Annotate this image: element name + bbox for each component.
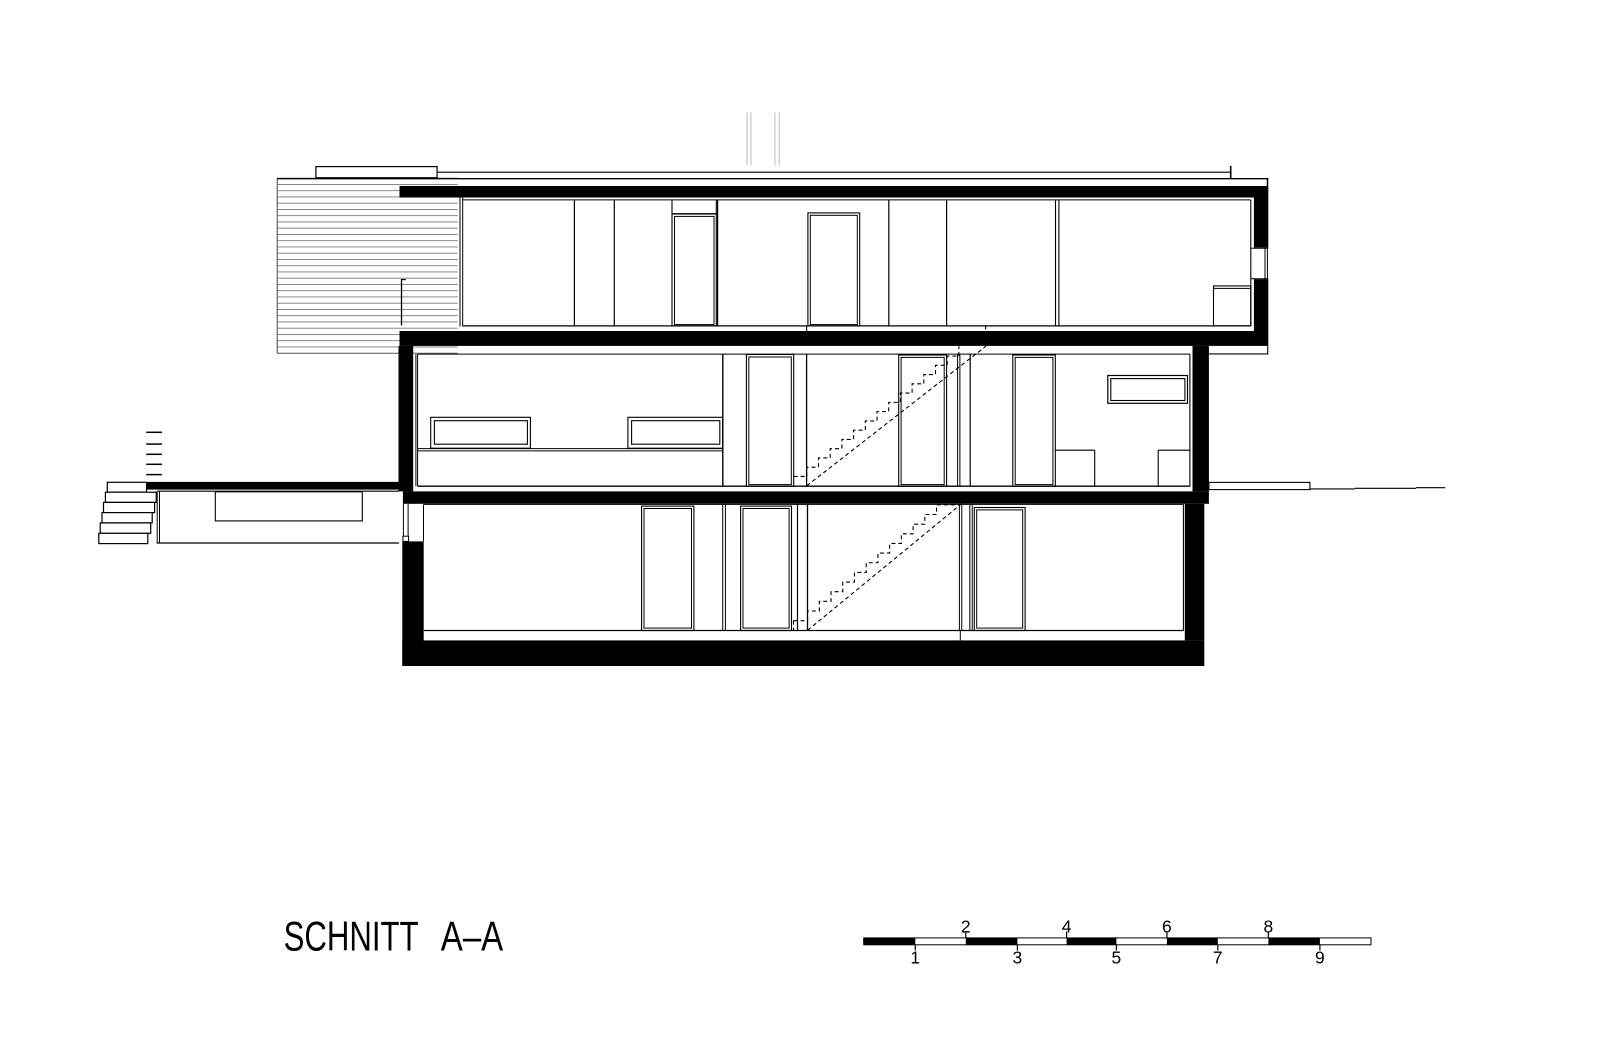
svg-text:SCHNITT: SCHNITT [284, 913, 419, 960]
svg-text:9: 9 [1315, 948, 1325, 968]
svg-text:1: 1 [910, 948, 920, 968]
svg-text:2: 2 [961, 917, 971, 937]
svg-text:7: 7 [1213, 948, 1223, 968]
svg-text:8: 8 [1264, 917, 1274, 937]
svg-text:6: 6 [1162, 917, 1172, 937]
svg-text:3: 3 [1013, 948, 1023, 968]
svg-text:A–A: A–A [441, 913, 503, 960]
svg-text:4: 4 [1062, 917, 1072, 937]
svg-text:5: 5 [1112, 948, 1122, 968]
